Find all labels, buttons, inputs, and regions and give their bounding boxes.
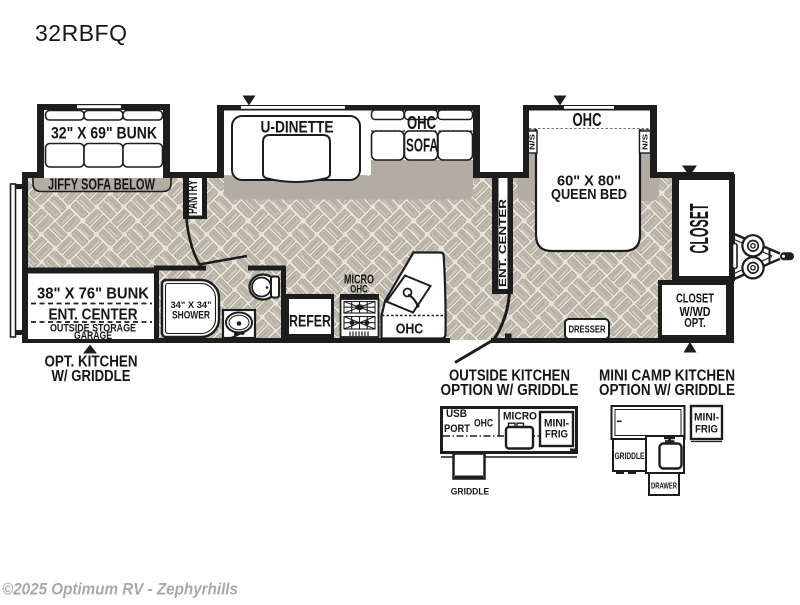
svg-text:ENT. CENTER: ENT. CENTER xyxy=(49,307,138,324)
svg-text:GRIDDLE: GRIDDLE xyxy=(451,487,490,497)
svg-text:32RBFQ: 32RBFQ xyxy=(35,20,127,46)
svg-text:PANTRY: PANTRY xyxy=(185,180,201,214)
svg-text:U-DINETTE: U-DINETTE xyxy=(261,119,334,137)
svg-text:OHC: OHC xyxy=(407,113,436,133)
svg-text:DRESSER: DRESSER xyxy=(569,325,607,336)
svg-text:W/ GRIDDLE: W/ GRIDDLE xyxy=(52,368,131,385)
svg-text:CLOSET: CLOSET xyxy=(684,203,714,253)
svg-text:©2025 Optimum RV - Zephyrhills: ©2025 Optimum RV - Zephyrhills xyxy=(2,581,238,599)
svg-text:FRIG: FRIG xyxy=(545,428,568,440)
svg-text:REFER: REFER xyxy=(289,312,331,331)
svg-text:38" X 76" BUNK: 38" X 76" BUNK xyxy=(37,286,149,303)
svg-text:SOFA: SOFA xyxy=(406,136,438,156)
svg-text:OPTION W/ GRIDDLE: OPTION W/ GRIDDLE xyxy=(599,382,735,399)
svg-text:OHC: OHC xyxy=(396,321,424,338)
svg-text:OHC: OHC xyxy=(474,417,493,429)
svg-text:QUEEN BED: QUEEN BED xyxy=(551,186,627,203)
svg-text:SHOWER: SHOWER xyxy=(172,310,210,322)
svg-text:GARAGE: GARAGE xyxy=(74,330,112,342)
svg-text:OPT.: OPT. xyxy=(684,315,706,330)
svg-text:JIFFY SOFA BELOW: JIFFY SOFA BELOW xyxy=(48,177,155,194)
svg-text:FRIG: FRIG xyxy=(695,424,718,436)
svg-text:PORT: PORT xyxy=(444,423,470,435)
svg-text:DRAWER: DRAWER xyxy=(651,481,677,491)
svg-text:OHC: OHC xyxy=(573,110,602,130)
svg-text:OPTION W/ GRIDDLE: OPTION W/ GRIDDLE xyxy=(441,382,579,399)
svg-text:ENT. CENTER: ENT. CENTER xyxy=(497,198,509,287)
svg-text:N/S: N/S xyxy=(641,134,650,150)
svg-text:GRIDDLE: GRIDDLE xyxy=(615,451,645,461)
svg-text:USB: USB xyxy=(446,408,467,420)
svg-text:OHC: OHC xyxy=(350,284,368,296)
svg-text:32" X 69" BUNK: 32" X 69" BUNK xyxy=(51,124,158,143)
svg-text:MICRO: MICRO xyxy=(503,411,537,423)
svg-text:MINI-: MINI- xyxy=(694,412,719,424)
